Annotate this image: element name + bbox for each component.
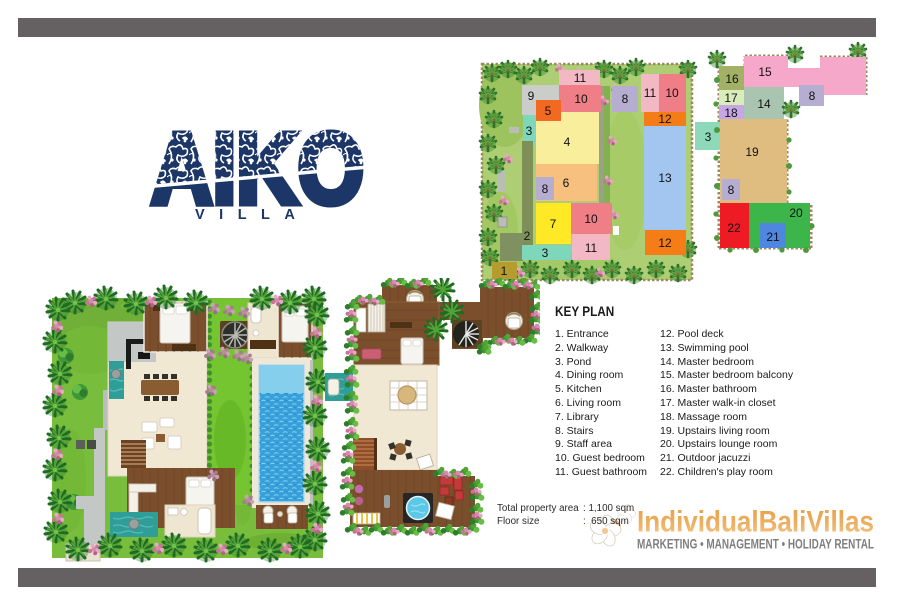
svg-text:4: 4 — [564, 135, 571, 149]
svg-text:IndividualBaliVillas: IndividualBaliVillas — [637, 506, 874, 539]
svg-text:8: 8 — [542, 182, 549, 196]
svg-text:7: 7 — [550, 217, 557, 231]
svg-text:19: 19 — [745, 145, 759, 159]
svg-text:20: 20 — [789, 206, 803, 220]
svg-text:8: 8 — [728, 183, 735, 197]
svg-text:11: 11 — [644, 86, 657, 100]
svg-text:13: 13 — [658, 171, 672, 185]
svg-text:6: 6 — [563, 176, 570, 190]
svg-text:VILLA: VILLA — [195, 207, 309, 223]
svg-text:10: 10 — [584, 212, 598, 226]
svg-text:10: 10 — [574, 92, 588, 106]
svg-text:15: 15 — [758, 65, 772, 79]
svg-text:12: 12 — [658, 112, 672, 126]
svg-text:21: 21 — [766, 230, 780, 244]
svg-text:8: 8 — [809, 89, 816, 103]
svg-text:3: 3 — [705, 130, 712, 144]
svg-text:11: 11 — [574, 71, 587, 85]
svg-text:8: 8 — [622, 92, 629, 106]
svg-text:16: 16 — [725, 72, 739, 86]
svg-text:5: 5 — [545, 104, 552, 118]
svg-text:18: 18 — [724, 106, 738, 120]
svg-text:9: 9 — [528, 89, 535, 103]
svg-text:10: 10 — [665, 86, 679, 100]
svg-text:3: 3 — [542, 246, 549, 260]
svg-text:11: 11 — [585, 241, 598, 255]
svg-text:17: 17 — [724, 91, 738, 105]
svg-text:MARKETING • MANAGEMENT • HOLID: MARKETING • MANAGEMENT • HOLIDAY RENTAL — [637, 537, 874, 552]
svg-text:14: 14 — [757, 97, 771, 111]
svg-text:3: 3 — [526, 124, 533, 138]
svg-text:1: 1 — [501, 264, 508, 278]
svg-text:12: 12 — [658, 236, 672, 250]
svg-text:22: 22 — [727, 221, 741, 235]
svg-text:2: 2 — [524, 229, 531, 243]
